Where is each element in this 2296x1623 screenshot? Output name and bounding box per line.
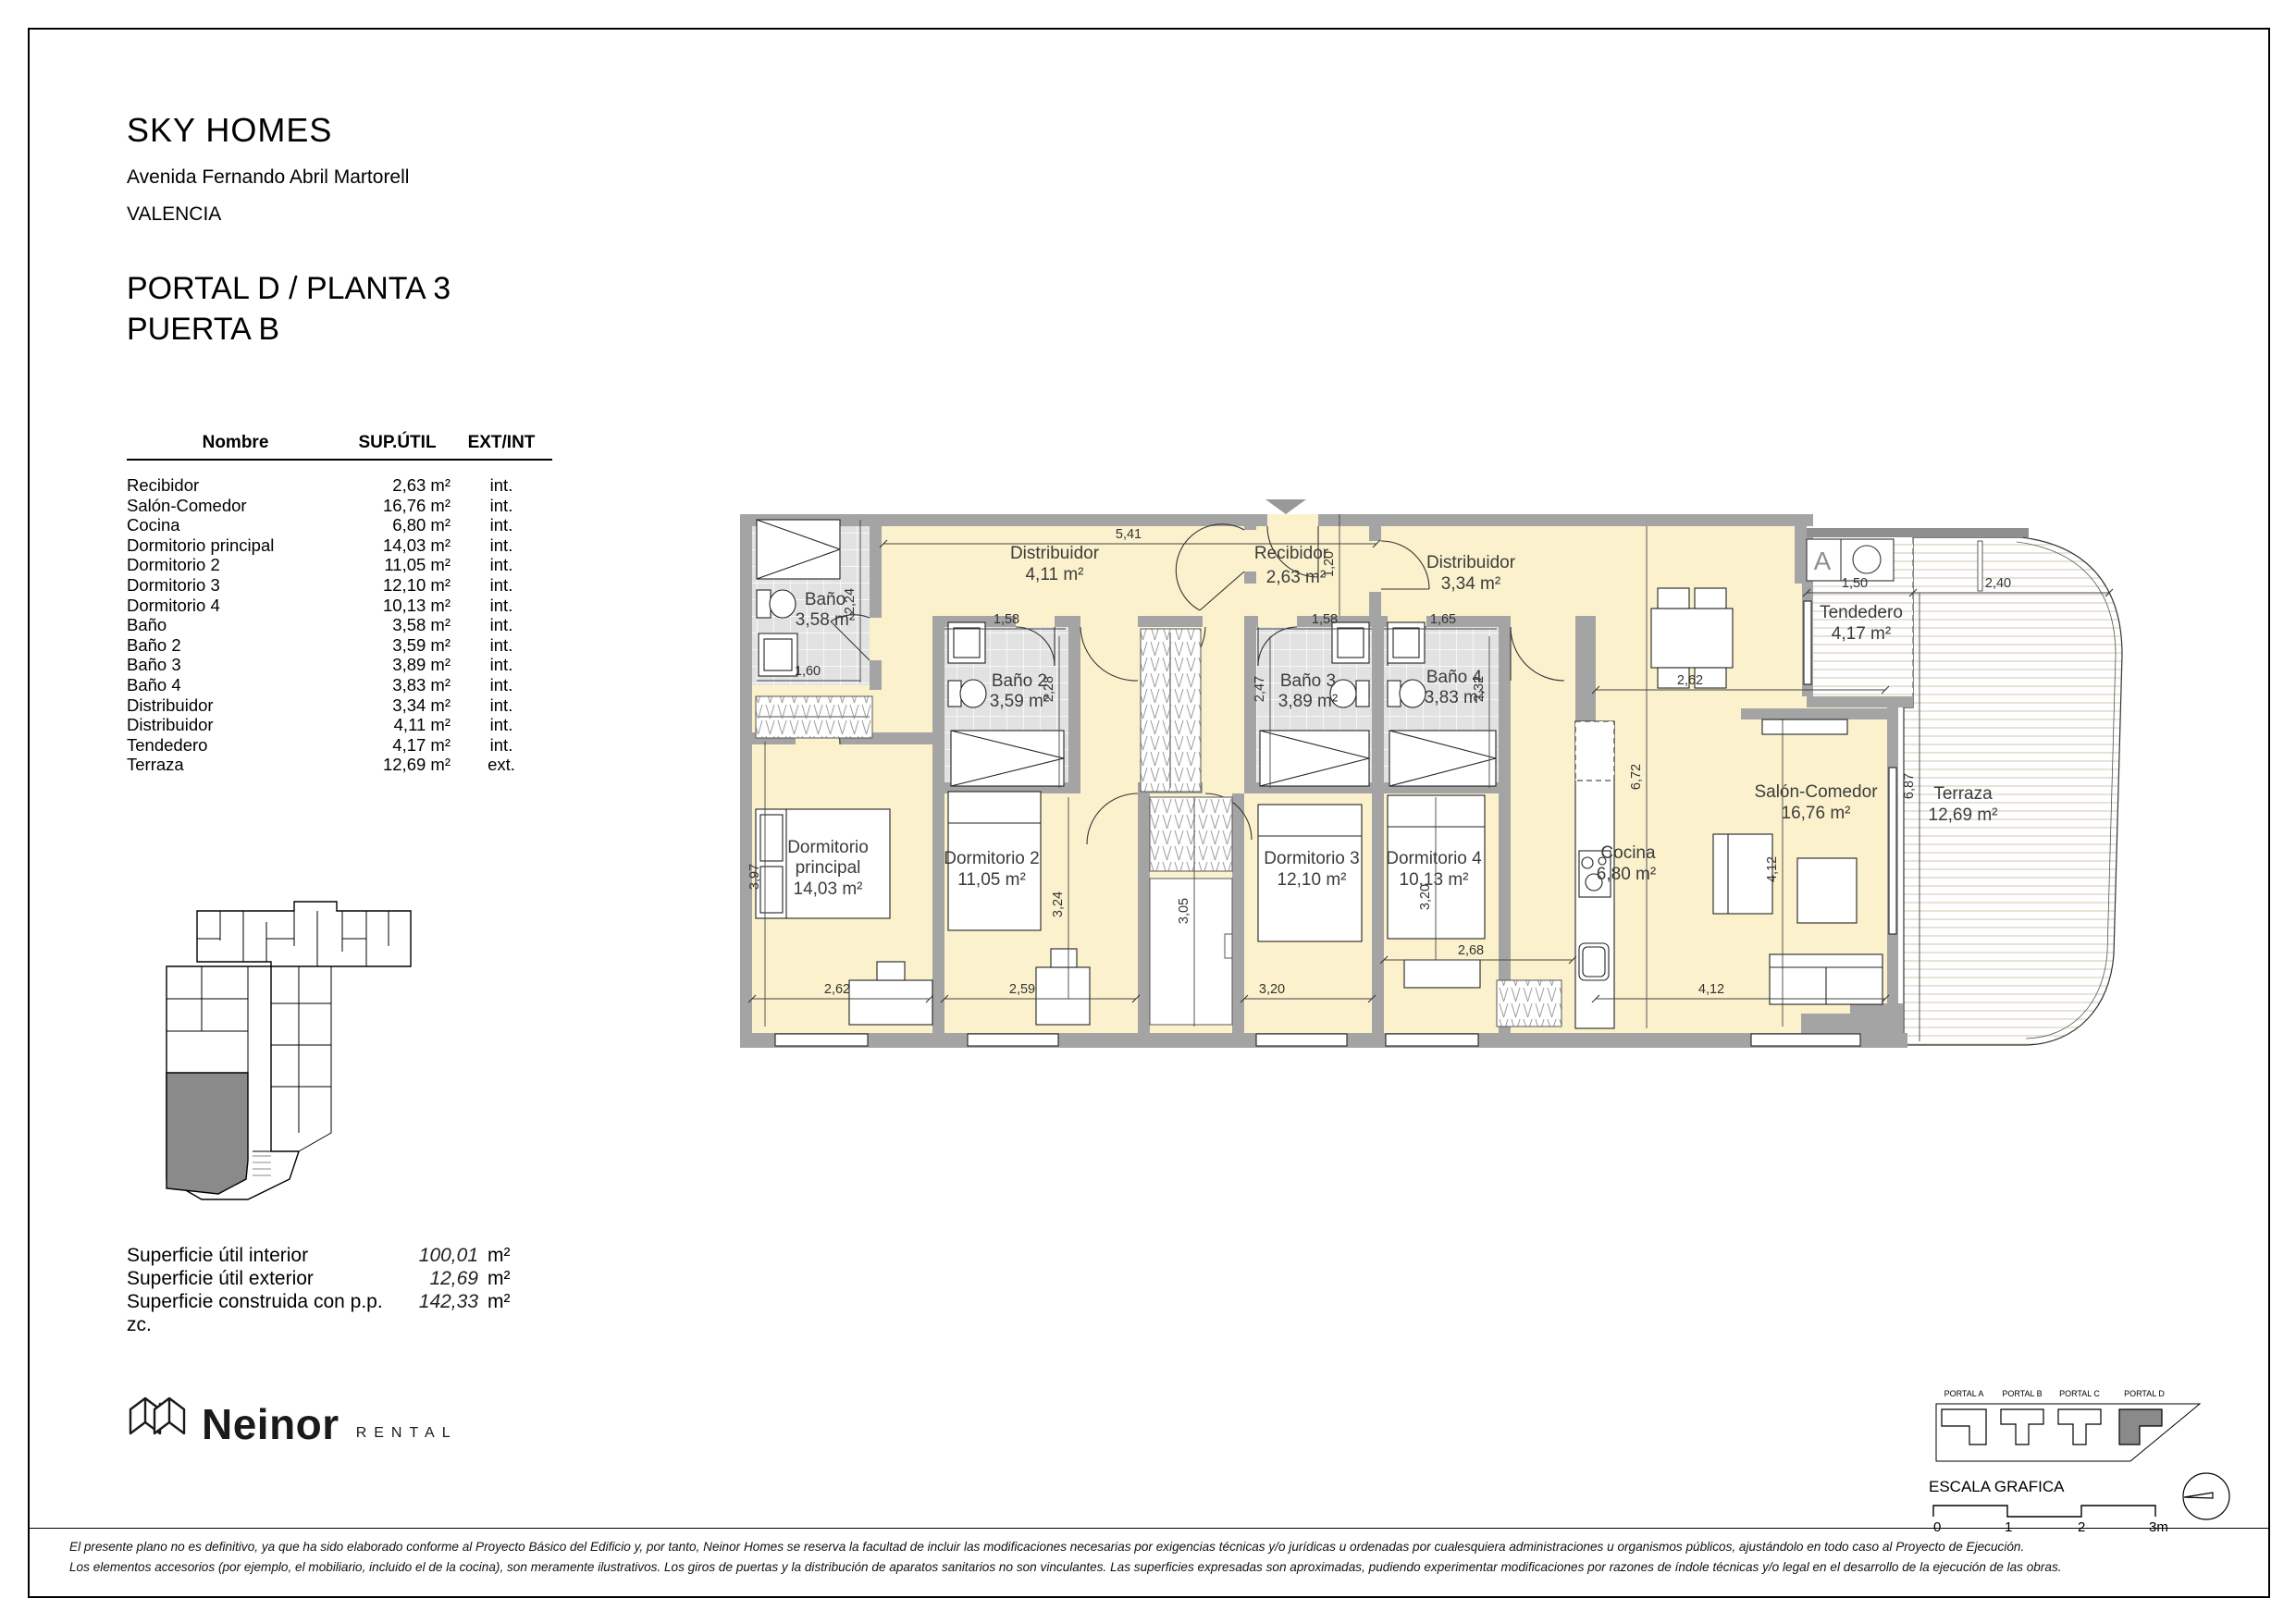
unit-title: PORTAL D / PLANTA 3 PUERTA B (127, 268, 451, 350)
floor-plan-sheet: { "document": { "title": "SKY HOMES", "a… (0, 0, 2296, 1623)
col-header-type: EXT/INT (451, 433, 552, 453)
scale-tick-1: 1 (2005, 1519, 2012, 1535)
summary-row: Superficie útil exterior12,69m² (127, 1267, 511, 1290)
svg-text:Baño 2: Baño 2 (992, 671, 1047, 691)
svg-text:1,58: 1,58 (1312, 612, 1338, 627)
table-header: Nombre SUP.ÚTIL EXT/INT (127, 433, 552, 461)
stair-label: A (1814, 547, 1832, 575)
svg-text:10,13 m²: 10,13 m² (1400, 870, 1469, 890)
svg-text:6,87: 6,87 (1902, 773, 1917, 799)
portal-key-plan: PORTAL A PORTAL B PORTAL C PORTAL D (1929, 1385, 2216, 1473)
portal-b-shape (2001, 1409, 2043, 1445)
svg-text:Salón-Comedor: Salón-Comedor (1754, 782, 1878, 802)
project-address: Avenida Fernando Abril Martorell (127, 166, 409, 189)
brand-logo: Neinor RENTAL (128, 1395, 458, 1445)
svg-text:2,59: 2,59 (1009, 982, 1035, 997)
svg-text:3,05: 3,05 (1177, 898, 1191, 924)
svg-text:4,17 m²: 4,17 m² (1832, 624, 1891, 644)
svg-text:Cocina: Cocina (1600, 843, 1656, 863)
svg-text:11,05 m²: 11,05 m² (957, 870, 1026, 890)
scale-tick-0: 0 (1933, 1519, 1941, 1535)
svg-text:1,50: 1,50 (1842, 576, 1868, 591)
unit-title-line1: PORTAL D / PLANTA 3 (127, 268, 451, 309)
portal-c-label: PORTAL C (2059, 1389, 2100, 1398)
svg-text:Baño: Baño (805, 590, 846, 609)
svg-text:3,83 m²: 3,83 m² (1425, 688, 1484, 707)
svg-text:3,89 m²: 3,89 m² (1278, 692, 1338, 711)
entry-arrow (1265, 499, 1306, 514)
svg-text:1,65: 1,65 (1430, 612, 1456, 627)
table-row: Distribuidor3,34 m²int. (127, 695, 552, 716)
stair-core: A (1807, 539, 1894, 581)
north-compass (2176, 1467, 2235, 1531)
portal-a-label: PORTAL A (1944, 1389, 1984, 1398)
svg-text:Baño 3: Baño 3 (1280, 671, 1336, 691)
table-row: Salón-Comedor16,76 m²int. (127, 496, 552, 516)
svg-text:2,47: 2,47 (1253, 676, 1267, 702)
scale-label: ESCALA GRAFICA (1929, 1478, 2064, 1496)
col-header-name: Nombre (127, 433, 344, 453)
table-row: Dormitorio principal14,03 m²int. (127, 535, 552, 556)
summary-row: Superficie útil interior100,01m² (127, 1244, 511, 1267)
svg-text:4,12: 4,12 (1698, 982, 1724, 997)
svg-text:3,97: 3,97 (747, 864, 762, 890)
neinor-logo-icon (128, 1395, 187, 1445)
svg-text:3,58 m²: 3,58 m² (796, 610, 855, 630)
table-row: Baño3,58 m²int. (127, 615, 552, 635)
svg-text:Distribuidor: Distribuidor (1426, 553, 1516, 572)
svg-text:4,12: 4,12 (1765, 856, 1780, 882)
svg-text:Recibidor: Recibidor (1254, 544, 1329, 563)
svg-text:Dormitorio 3: Dormitorio 3 (1264, 849, 1359, 868)
table-row: Recibidor2,63 m²int. (127, 475, 552, 496)
disclaimer-line1: El presente plano no es definitivo, ya q… (69, 1537, 2234, 1557)
disclaimer-line2: Los elementos accesorios (por ejemplo, e… (69, 1557, 2234, 1578)
svg-text:6,72: 6,72 (1629, 764, 1644, 790)
table-row: Terraza12,69 m²ext. (127, 755, 552, 775)
project-city: VALENCIA (127, 203, 221, 226)
svg-text:Dormitorio 4: Dormitorio 4 (1386, 849, 1482, 868)
svg-text:12,69 m²: 12,69 m² (1929, 805, 1998, 825)
svg-text:6,80 m²: 6,80 m² (1597, 865, 1656, 884)
svg-text:2,62: 2,62 (824, 982, 850, 997)
svg-text:16,76 m²: 16,76 m² (1782, 804, 1851, 823)
svg-text:principal: principal (796, 858, 861, 878)
svg-text:12,10 m²: 12,10 m² (1278, 870, 1347, 890)
scale-tick-2: 2 (2078, 1519, 2085, 1535)
scale-bar: 0 1 2 3m (1929, 1498, 2169, 1540)
table-row: Dormitorio 312,10 m²int. (127, 575, 552, 596)
portal-b-label: PORTAL B (2002, 1389, 2042, 1398)
unit-title-line2: PUERTA B (127, 309, 451, 350)
table-row: Dormitorio 211,05 m²int. (127, 555, 552, 575)
summary-row: Superficie construida con p.p. zc.142,33… (127, 1290, 511, 1336)
svg-text:Tendedero: Tendedero (1820, 603, 1903, 622)
table-rows: Recibidor2,63 m²int. Salón-Comedor16,76 … (127, 475, 552, 775)
floor-plan: A (740, 499, 2128, 1091)
project-title: SKY HOMES (127, 111, 332, 150)
portal-a-shape (1942, 1409, 1986, 1445)
table-row: Dormitorio 410,13 m²int. (127, 596, 552, 616)
portal-c-shape (2058, 1409, 2101, 1445)
table-row: Baño 43,83 m²int. (127, 675, 552, 695)
portal-d-label: PORTAL D (2124, 1389, 2165, 1398)
svg-text:2,62: 2,62 (1677, 673, 1703, 688)
svg-text:2,68: 2,68 (1458, 943, 1484, 958)
table-row: Cocina6,80 m²int. (127, 515, 552, 535)
table-row: Tendedero4,17 m²int. (127, 735, 552, 756)
surface-summary: Superficie útil interior100,01m² Superfi… (127, 1244, 511, 1336)
svg-text:4,11 m²: 4,11 m² (1025, 565, 1083, 584)
svg-text:14,03 m²: 14,03 m² (794, 879, 863, 899)
room-area-table: Nombre SUP.ÚTIL EXT/INT Recibidor2,63 m²… (127, 433, 552, 775)
svg-text:3,20: 3,20 (1259, 982, 1285, 997)
scale-tick-3: 3m (2149, 1519, 2168, 1535)
brand-division: RENTAL (356, 1425, 458, 1445)
portal-d-shape (2119, 1409, 2162, 1445)
table-row: Distribuidor4,11 m²int. (127, 715, 552, 735)
svg-text:Dormitorio: Dormitorio (787, 838, 869, 857)
svg-text:Dormitorio 2: Dormitorio 2 (944, 849, 1039, 868)
svg-text:5,41: 5,41 (1116, 527, 1142, 542)
svg-text:3,24: 3,24 (1051, 891, 1066, 917)
svg-text:1,58: 1,58 (994, 612, 1019, 627)
svg-text:Distribuidor: Distribuidor (1010, 544, 1100, 563)
legal-disclaimer: El presente plano no es definitivo, ya q… (69, 1537, 2234, 1578)
col-header-area: SUP.ÚTIL (344, 433, 451, 453)
highlighted-unit (167, 1073, 248, 1194)
site-plan (109, 874, 414, 1221)
svg-text:2,40: 2,40 (1985, 576, 2011, 591)
svg-text:3,34 m²: 3,34 m² (1441, 574, 1500, 594)
brand-name: Neinor (202, 1403, 339, 1445)
table-row: Baño 23,59 m²int. (127, 635, 552, 656)
svg-text:Terraza: Terraza (1933, 784, 1993, 804)
svg-text:3,59 m²: 3,59 m² (990, 692, 1049, 711)
svg-text:1,60: 1,60 (795, 664, 821, 679)
svg-text:Baño 4: Baño 4 (1426, 668, 1483, 687)
svg-text:2,63 m²: 2,63 m² (1266, 568, 1326, 587)
table-row: Baño 33,89 m²int. (127, 655, 552, 675)
